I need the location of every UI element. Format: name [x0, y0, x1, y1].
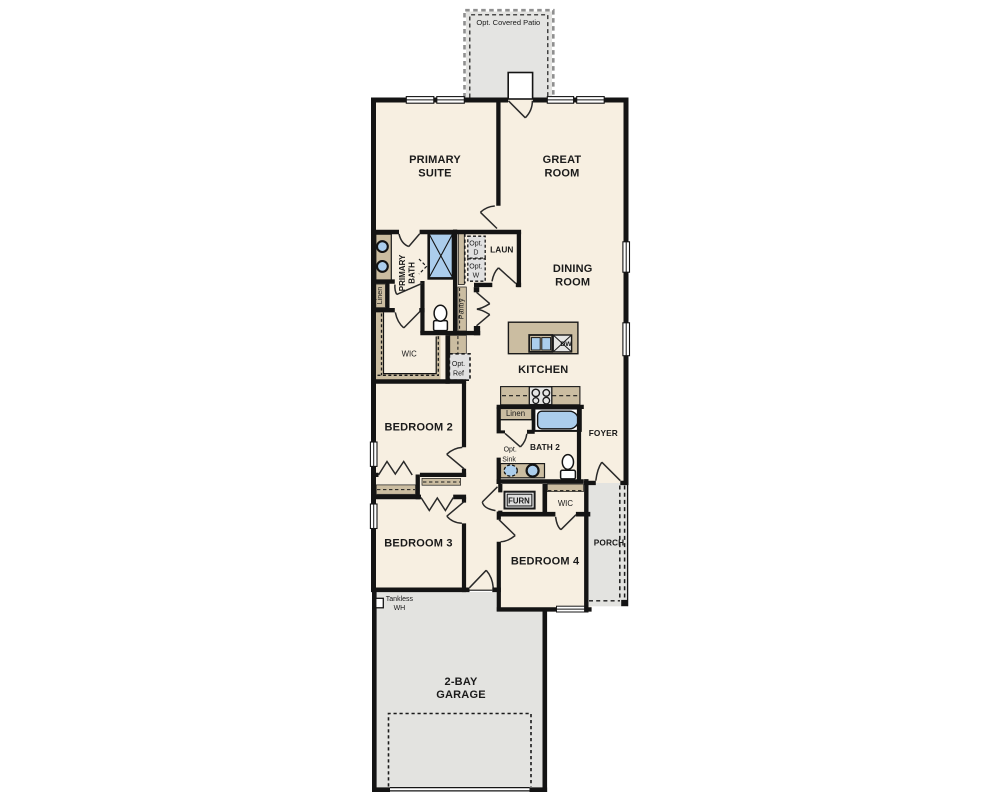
svg-text:Opt.: Opt. [504, 447, 517, 454]
svg-text:FOYER: FOYER [589, 428, 618, 438]
svg-text:KITCHEN: KITCHEN [518, 364, 568, 376]
svg-text:GARAGE: GARAGE [436, 689, 485, 701]
svg-text:BATH 2: BATH 2 [530, 442, 560, 452]
svg-text:2-BAY: 2-BAY [445, 676, 478, 688]
svg-text:Sink: Sink [502, 457, 516, 464]
svg-text:BEDROOM 4: BEDROOM 4 [511, 556, 580, 568]
svg-text:SUITE: SUITE [418, 167, 451, 179]
svg-text:WIC: WIC [558, 499, 574, 508]
svg-text:DINING: DINING [553, 263, 593, 275]
svg-text:ROOM: ROOM [555, 277, 590, 289]
svg-text:Ref: Ref [453, 370, 464, 377]
svg-text:Opt.: Opt. [469, 240, 482, 247]
svg-text:PRIMARY: PRIMARY [409, 154, 461, 166]
svg-text:WH: WH [394, 605, 406, 612]
svg-text:DW: DW [560, 341, 572, 348]
svg-text:ROOM: ROOM [544, 167, 579, 179]
svg-text:D: D [473, 249, 478, 256]
svg-text:WIC: WIC [402, 350, 418, 359]
svg-text:PORCH: PORCH [594, 537, 624, 547]
svg-text:BEDROOM 2: BEDROOM 2 [384, 422, 452, 434]
svg-text:Opt.: Opt. [469, 263, 482, 270]
svg-text:PRIMARY: PRIMARY [398, 254, 407, 291]
svg-text:Linen: Linen [375, 287, 384, 305]
svg-text:BATH: BATH [407, 262, 416, 284]
svg-text:LAUN: LAUN [490, 244, 513, 254]
svg-text:FURN: FURN [508, 496, 530, 505]
svg-text:BEDROOM 3: BEDROOM 3 [384, 538, 452, 550]
svg-text:Pantry: Pantry [457, 298, 466, 319]
svg-text:Tankless: Tankless [386, 596, 414, 603]
svg-text:Linen: Linen [506, 409, 525, 418]
svg-text:GREAT: GREAT [543, 154, 582, 166]
svg-text:W: W [473, 272, 480, 279]
svg-text:Opt.: Opt. [452, 361, 465, 368]
svg-text:Opt. Covered Patio: Opt. Covered Patio [476, 18, 540, 27]
